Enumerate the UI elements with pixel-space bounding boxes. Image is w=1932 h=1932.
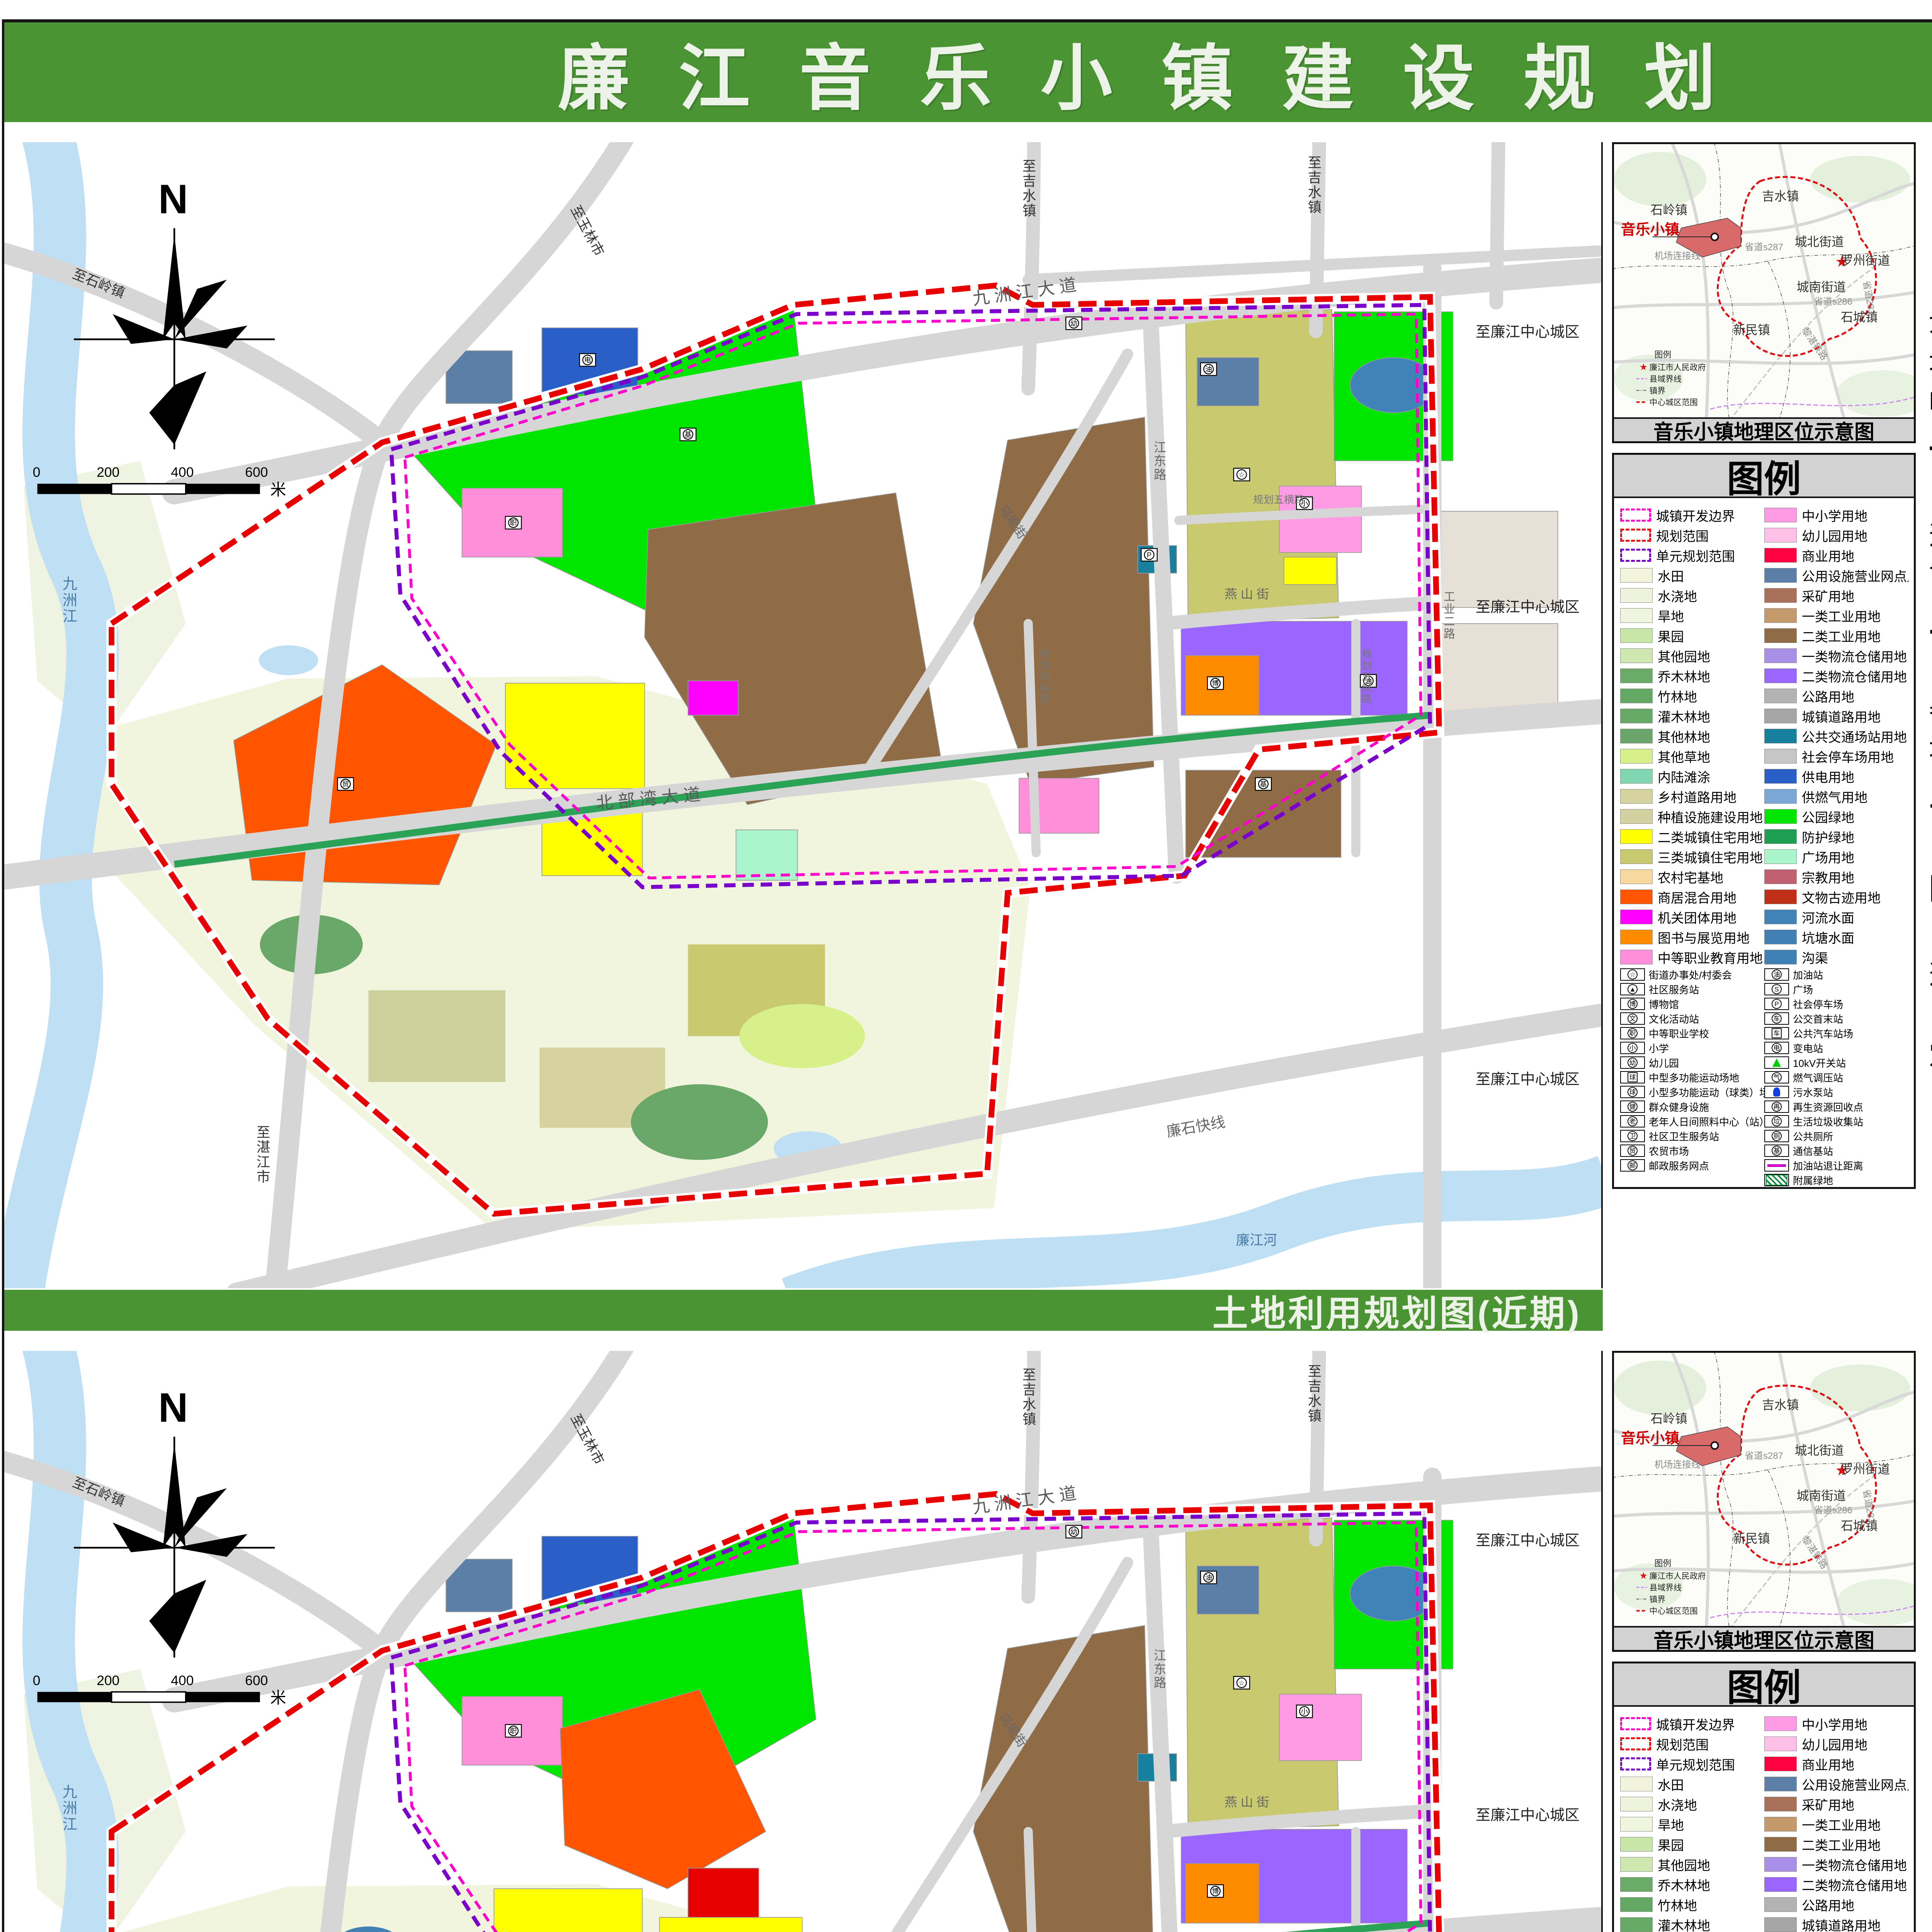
- legend-label: 公用设施营业网点用地: [1802, 566, 1908, 585]
- notice-paragraph: 远期(2036~2050)：按照音乐小镇的发展目标和城市总体规划确定的发展规模，…: [1929, 995, 1932, 1075]
- legend-swatch: [1620, 1917, 1653, 1932]
- legend-color-item: 三类城镇住宅用地: [1620, 847, 1764, 867]
- marker-glyph: 基: [1260, 780, 1267, 788]
- legend-swatch: [1764, 568, 1797, 583]
- legend-swatch: [1764, 668, 1797, 683]
- symbol-glyph: 基: [1772, 1146, 1782, 1156]
- legend-swatch: [1764, 1857, 1797, 1872]
- legend-swatch: [1764, 829, 1797, 844]
- 附属绿地-icon: [1764, 1174, 1789, 1186]
- legend-label: 规划范围: [1656, 526, 1709, 545]
- legend-label: 一类工业用地: [1802, 606, 1881, 625]
- legend-color-item: 一类物流仓储用地: [1764, 646, 1908, 666]
- legend-symbol-item: 球小型多功能运动（球类）场地: [1620, 1085, 1764, 1099]
- scale-tick: 400: [171, 1673, 194, 1688]
- road-label: 规划五横路: [1253, 494, 1304, 505]
- marker-glyph: ☆: [1238, 471, 1245, 479]
- legend-swatch: [1764, 1757, 1797, 1771]
- section-heading: 二、建设目标: [1929, 600, 1932, 646]
- legend-label: 公共汽车站场: [1793, 1026, 1853, 1041]
- legend-label: 幼儿园: [1649, 1056, 1679, 1070]
- 群众健身设施-icon: 健: [1620, 1100, 1645, 1113]
- scale-tick: 0: [33, 464, 41, 480]
- legend-label: 幼儿园用地: [1802, 1735, 1867, 1753]
- legend-label: 乡村道路用地: [1658, 787, 1736, 806]
- marker-glyph: P: [1147, 551, 1151, 559]
- symbol-glyph: 球: [1628, 1087, 1638, 1097]
- direction-label: 至廉江中心城区: [1476, 1532, 1580, 1549]
- legend-swatch: [1620, 648, 1653, 663]
- legend-color-item: 果园: [1620, 626, 1764, 646]
- legend-color-item: 竹林地: [1620, 1895, 1764, 1915]
- inset-svg: 音乐小镇 ★ 石岭镇 吉水镇 城北街道 罗州街道 城南街道 新民镇 石城镇 机场…: [1614, 1353, 1914, 1628]
- road-label: 燕 山 街: [1225, 1795, 1269, 1809]
- legend-color-item: 一类工业用地: [1764, 605, 1908, 626]
- 社会停车场-icon: P: [1764, 998, 1789, 1010]
- inset-caption: 音乐小镇地理区位示意图: [1614, 417, 1914, 441]
- legend-label: 二类物流仓储用地: [1802, 667, 1907, 685]
- marker-glyph: 博: [1212, 1887, 1219, 1895]
- legend-swatch: [1764, 930, 1797, 944]
- legend-swatch: [1764, 1817, 1797, 1832]
- legend-label: 其他草地: [1658, 747, 1710, 766]
- direction-label: 至吉水镇: [1308, 1364, 1321, 1423]
- scale-unit: 米: [270, 480, 286, 498]
- legend-color-item: 公路用地: [1764, 686, 1908, 706]
- symbol-glyph: 车: [1772, 1028, 1782, 1038]
- road-label: 机场连接线: [1654, 1459, 1700, 1470]
- road-label: 江东路: [1154, 440, 1166, 482]
- legend-label: 中型多功能运动场地: [1649, 1070, 1739, 1085]
- town-label: 城南街道: [1797, 1489, 1846, 1503]
- legend-swatch: [1620, 1737, 1651, 1750]
- direction-label: 至吉水镇: [1022, 158, 1036, 218]
- legend-label: 燃气调压站: [1793, 1070, 1843, 1085]
- legend-near: 图例 城镇开发边界规划范围单元规划范围水田水浇地旱地果园其他园地乔木林地竹林地灌…: [1612, 453, 1916, 1189]
- symbol-glyph: 博: [1628, 999, 1638, 1009]
- inset-legend-title: 图例: [1654, 1559, 1671, 1568]
- legend-boundary-item: 城镇开发边界: [1620, 1714, 1764, 1734]
- scale-tick: 200: [97, 464, 119, 480]
- inset-caption: 音乐小镇地理区位示意图: [1614, 1626, 1914, 1650]
- symbol-glyph: 厕: [1772, 1131, 1782, 1141]
- legend-color-item: 其他园地: [1620, 1854, 1764, 1874]
- direction-label: 至廉江中心城区: [1476, 324, 1580, 340]
- 变电站-icon: 电: [1764, 1042, 1789, 1054]
- legend-symbol-item: 附属绿地: [1764, 1173, 1908, 1187]
- poster-page: 廉 江 音 乐 小 镇 建 设 规 划 批前公示: [0, 0, 1932, 1932]
- legend-color-item: 内陆滩涂: [1620, 766, 1764, 786]
- legend-label: 城镇道路用地: [1802, 1915, 1881, 1932]
- symbol-glyph: 小: [1628, 1043, 1638, 1053]
- river-label: 廉江河: [1236, 1232, 1277, 1248]
- legend-swatch: [1764, 709, 1797, 723]
- legend-symbol-item: 基通信基站: [1764, 1143, 1908, 1158]
- legend-color-item: 供电用地: [1764, 766, 1908, 786]
- legend-symbol-item: 厕公共厕所: [1764, 1129, 1908, 1143]
- town-label: 城北街道: [1795, 235, 1844, 249]
- legend-symbol-item: 贸农贸市场: [1620, 1143, 1764, 1158]
- symbol-glyph: 职: [1628, 1028, 1638, 1038]
- symbol-glyph: S: [1772, 984, 1782, 994]
- legend-swatch: [1620, 789, 1653, 804]
- legend-swatch: [1620, 709, 1653, 723]
- legend-swatch: [1620, 1797, 1653, 1811]
- legend-label: 供燃气用地: [1802, 787, 1867, 806]
- legend-swatch: [1620, 1897, 1653, 1912]
- legend-color-item: 采矿用地: [1764, 585, 1908, 605]
- section-heading: 一、规划范围: [1929, 427, 1932, 473]
- legend-swatch: [1620, 1757, 1651, 1770]
- legend-swatch: [1764, 508, 1797, 522]
- legend-color-item: 其他草地: [1620, 746, 1764, 766]
- legend-color-item: 灌木林地: [1620, 706, 1764, 726]
- 加油站退让距离-icon: [1764, 1159, 1789, 1172]
- legend-body: 城镇开发边界规划范围单元规划范围水田水浇地旱地果园其他园地乔木林地竹林地灌木林地…: [1614, 498, 1914, 1190]
- legend-swatch: [1620, 529, 1651, 542]
- legend-label: 小学: [1649, 1041, 1669, 1055]
- road-label: 省道s287: [1745, 1451, 1783, 1461]
- legend-color-item: 二类工业用地: [1764, 1834, 1908, 1854]
- legend-symbol-item: 10kV开关站: [1764, 1055, 1908, 1070]
- legend-swatch: [1620, 509, 1651, 522]
- section-heading: 三、功能定位: [1929, 773, 1932, 820]
- legend-swatch: [1620, 869, 1653, 884]
- legend-label: 幼儿园用地: [1802, 526, 1867, 545]
- legend-label: 公用设施营业网点用地: [1802, 1775, 1908, 1794]
- legend-color-item: 旱地: [1620, 1814, 1764, 1834]
- marker-glyph: 职: [510, 519, 517, 527]
- 生活垃圾收集站-icon: 垃: [1764, 1115, 1789, 1128]
- legend-swatch: [1764, 1777, 1797, 1791]
- legend-label: 中等职业学校: [1649, 1026, 1709, 1041]
- legend-label: 10kV开关站: [1793, 1056, 1846, 1070]
- legend-swatch: [1620, 769, 1653, 784]
- 广场-icon: S: [1764, 983, 1789, 995]
- legend-label: 老年人日间照料中心（站）: [1649, 1114, 1764, 1129]
- legend-color-item: 广场用地: [1764, 847, 1908, 867]
- legend-label: 防护绿地: [1802, 827, 1854, 846]
- legend-label: 中小学用地: [1802, 506, 1867, 525]
- town-label: 罗州街道: [1841, 253, 1890, 267]
- symbol-glyph: [1766, 1175, 1787, 1185]
- legend-label: 机关团体用地: [1658, 908, 1736, 927]
- legend-swatch: [1620, 549, 1651, 562]
- legend-label: 文化活动站: [1649, 1012, 1699, 1026]
- legend-swatch: [1764, 950, 1797, 964]
- symbol-glyph: 贸: [1628, 1146, 1638, 1156]
- legend-label: 旱地: [1658, 606, 1684, 625]
- inset-legend-title: 图例: [1654, 350, 1671, 360]
- legend-label: 城镇开发边界: [1656, 506, 1735, 525]
- legend-symbol-item: 加油站退让距离: [1764, 1158, 1908, 1173]
- legend-color-item: 二类工业用地: [1764, 626, 1908, 646]
- legend-label: 污水泵站: [1793, 1085, 1833, 1099]
- legend-color-item: 种植设施建设用地: [1620, 806, 1764, 827]
- legend-swatch: [1764, 528, 1797, 543]
- legend-swatch: [1764, 769, 1797, 784]
- legend-label: 果园: [1658, 626, 1684, 645]
- inset-legend-label: 镇界: [1650, 386, 1666, 395]
- legend-label: 果园: [1658, 1835, 1684, 1854]
- legend-label: 公共交通场站用地: [1802, 727, 1907, 746]
- direction-label: 至湛江市: [257, 1124, 270, 1184]
- location-inset-map: 音乐小镇 ★ 石岭镇 吉水镇 城北街道 罗州街道 城南街道 新民镇 石城镇 机场…: [1614, 144, 1914, 419]
- section-heading: 四、用地布局: [1929, 866, 1932, 912]
- symbol-glyph: ☆: [1628, 969, 1638, 980]
- direction-label: 至廉江中心城区: [1476, 1807, 1580, 1823]
- legend-label: 加油站: [1793, 968, 1823, 982]
- 污水泵站-icon: [1764, 1086, 1789, 1098]
- legend-symbol-item: ☆街道办事处/村委会: [1620, 967, 1764, 982]
- symbol-glyph: 球: [1628, 1072, 1638, 1082]
- legend-label: 农村宅基地: [1658, 867, 1723, 886]
- legend-color-item: 商业用地: [1764, 545, 1908, 565]
- notice-paragraph: 根据《中华人民共和国城乡规划法》、《广东省城乡规划条例》、《城市规划编制办法》等…: [1929, 222, 1932, 423]
- legend-swatch: [1764, 1797, 1797, 1811]
- 街道办事处/村委会-icon: ☆: [1620, 968, 1645, 981]
- legend-label: 社会停车场用地: [1802, 747, 1894, 766]
- location-inset-far: 音乐小镇 ★ 石岭镇 吉水镇 城北街道 罗州街道 城南街道 新民镇 石城镇 机场…: [1612, 1351, 1916, 1652]
- legend-color-item: 中小学用地: [1764, 505, 1908, 525]
- symbol-glyph: 气: [1772, 1072, 1782, 1082]
- town-label: 石岭镇: [1651, 203, 1687, 217]
- legend-swatch: [1764, 648, 1797, 663]
- 公交首末站-icon: 车: [1764, 1012, 1789, 1025]
- legend-swatch: [1620, 829, 1653, 844]
- inset-svg: 音乐小镇 ★ 石岭镇 吉水镇 城北街道 罗州街道 城南街道 新民镇 石城镇 机场…: [1614, 144, 1914, 419]
- legend-swatch: [1620, 1877, 1653, 1892]
- land-use-map-near-term: 职 电 基 幼 油 ☆ 小 P 博 基 油 贸 九 洲 江 大 道 北 部 湾 …: [3, 142, 1603, 1288]
- legend-color-item: 供燃气用地: [1764, 786, 1908, 806]
- legend-color-item: 中等职业教育用地: [1620, 947, 1764, 967]
- legend-swatch: [1764, 628, 1797, 643]
- legend-color-item: 城镇道路用地: [1764, 1915, 1908, 1932]
- symbol-glyph: 车: [1772, 1014, 1782, 1024]
- legend-swatch: [1620, 668, 1653, 683]
- legend-label: 一类工业用地: [1802, 1815, 1881, 1834]
- legend-color-item: 乡村道路用地: [1620, 786, 1764, 806]
- legend-swatch: [1764, 548, 1797, 563]
- 老年人日间照料中心（站）-icon: 老: [1620, 1115, 1645, 1128]
- legend-color-item: 农村宅基地: [1620, 867, 1764, 887]
- legend-label: 邮政服务网点: [1649, 1158, 1709, 1173]
- legend-swatch: [1764, 849, 1797, 864]
- legend-label: 单元规划范围: [1656, 1755, 1735, 1774]
- legend-label: 商居混合用地: [1658, 888, 1736, 906]
- symbol-glyph: [1772, 1058, 1781, 1067]
- legend-color-item: 二类物流仓储用地: [1764, 666, 1908, 686]
- legend-label: 群众健身设施: [1649, 1100, 1709, 1114]
- legend-swatch: [1764, 749, 1797, 764]
- legend-label: 其他园地: [1658, 646, 1710, 665]
- legend-swatch: [1764, 889, 1797, 904]
- legend-label: 坑塘水面: [1802, 928, 1854, 947]
- road-label: 省道s287: [1745, 242, 1783, 252]
- legend-symbol-item: 健群众健身设施: [1620, 1099, 1764, 1114]
- legend-color-item: 河流水面: [1764, 907, 1908, 927]
- town-label: 城北街道: [1795, 1444, 1844, 1458]
- notice-heading: 公示说明: [1929, 144, 1932, 212]
- legend-label: 农贸市场: [1649, 1144, 1689, 1158]
- town-label: 石岭镇: [1651, 1412, 1687, 1425]
- marker-glyph: ☆: [1238, 1679, 1245, 1687]
- symbol-glyph: P: [1772, 999, 1782, 1009]
- direction-label: 至廉江中心城区: [1476, 1071, 1580, 1088]
- map1-svg: 职 电 基 幼 油 ☆ 小 P 博 基 油 贸 九 洲 江 大 道 北 部 湾 …: [3, 142, 1601, 1288]
- legend-symbol-item: 车公共汽车站场: [1764, 1026, 1908, 1041]
- marker-glyph: 基: [684, 430, 691, 439]
- legend-label: 社会停车场: [1793, 997, 1843, 1011]
- legend-color-item: 公用设施营业网点用地: [1764, 565, 1908, 585]
- road-label: 工业二路: [1444, 590, 1455, 640]
- legend-label: 公共厕所: [1793, 1129, 1833, 1143]
- legend-color-item: 水田: [1620, 1774, 1764, 1794]
- legend-swatch: [1764, 1736, 1797, 1751]
- legend-boundary-item: 规划范围: [1620, 525, 1764, 545]
- legend-swatch: [1764, 789, 1797, 804]
- legend-title: 图例: [1614, 1663, 1914, 1707]
- legend-symbol-item: 博博物馆: [1620, 997, 1764, 1011]
- legend-label: 内陆滩涂: [1658, 767, 1710, 786]
- legend-label: 商业用地: [1802, 546, 1854, 565]
- legend-color-item: 机关团体用地: [1620, 907, 1764, 927]
- river-label: 九洲江: [63, 576, 77, 625]
- legend-title: 图例: [1614, 455, 1914, 498]
- legend-swatch: [1620, 809, 1653, 824]
- legend-label: 单元规划范围: [1656, 546, 1735, 565]
- legend-boundary-item: 规划范围: [1620, 1734, 1764, 1754]
- 农贸市场-icon: 贸: [1620, 1145, 1645, 1157]
- symbol-glyph: 幼: [1628, 1058, 1638, 1068]
- town-label: 罗州街道: [1841, 1462, 1890, 1476]
- symbol-glyph: 再: [1772, 1102, 1782, 1112]
- scale-tick: 400: [171, 464, 194, 480]
- legend-symbol-item: 球中型多功能运动场地: [1620, 1070, 1764, 1085]
- 小学-icon: 小: [1620, 1042, 1645, 1054]
- legend-swatch: [1764, 1897, 1797, 1912]
- legend-label: 旱地: [1658, 1815, 1684, 1834]
- legend-symbol-item: S广场: [1764, 982, 1908, 997]
- legend-color-item: 果园: [1620, 1834, 1764, 1854]
- legend-symbol-item: 文文化活动站: [1620, 1011, 1764, 1026]
- legend-boundary-item: 城镇开发边界: [1620, 505, 1764, 525]
- 文化活动站-icon: 文: [1620, 1012, 1645, 1025]
- legend-color-item: 社会停车场用地: [1764, 746, 1908, 766]
- location-inset-near: 音乐小镇 ★ 石岭镇 吉水镇 城北街道 罗州街道 城南街道 新民镇 石城镇 机场…: [1612, 142, 1916, 443]
- legend-color-item: 采矿用地: [1764, 1794, 1908, 1814]
- legend-color-item: 水浇地: [1620, 1794, 1764, 1814]
- marker-glyph: 小: [1301, 1707, 1308, 1715]
- legend-swatch: [1620, 729, 1653, 743]
- legend-color-item: 一类工业用地: [1764, 1814, 1908, 1834]
- notice-paragraph: 打造集国际品牌电声乐器研发制造、乐器生产技师培训、国际乐器展贸基地、电声音乐创作…: [1929, 649, 1932, 769]
- legend-label: 中等职业教育用地: [1658, 948, 1763, 967]
- legend-boundary-item: 单元规划范围: [1620, 1754, 1764, 1774]
- map1-banner: 土地利用规划图(近期): [3, 1290, 1603, 1331]
- legend-label: 三类城镇住宅用地: [1658, 847, 1763, 866]
- legend-swatch: [1764, 689, 1797, 703]
- legend-color-item: 二类物流仓储用地: [1764, 1874, 1908, 1895]
- legend-swatch: [1620, 1837, 1653, 1852]
- legend-swatch: [1620, 1717, 1651, 1730]
- marker-glyph: 油: [1205, 1573, 1212, 1582]
- legend-label: 灌木林地: [1658, 1915, 1710, 1932]
- legend-swatch: [1620, 1817, 1653, 1832]
- legend-color-item: 文物古迹用地: [1764, 887, 1908, 907]
- legend-swatch: [1764, 869, 1797, 884]
- legend-label: 文物古迹用地: [1802, 888, 1881, 906]
- marker-glyph: 电: [584, 356, 591, 364]
- legend-label: 水浇地: [1658, 1795, 1697, 1814]
- legend-symbol-item: 油加油站: [1764, 967, 1908, 982]
- scale-unit: 米: [270, 1689, 286, 1707]
- legend-color-item: 其他林地: [1620, 726, 1764, 746]
- legend-label: 广场用地: [1802, 847, 1854, 866]
- marker-glyph: 博: [1212, 679, 1219, 687]
- legend-label: 二类工业用地: [1802, 626, 1881, 645]
- legend-swatch: [1620, 1777, 1653, 1791]
- road-label: 机场连接线: [1654, 251, 1700, 261]
- scale-tick: 600: [245, 464, 268, 480]
- inset-legend-label: 县域界线: [1650, 375, 1682, 384]
- location-inset-map: 音乐小镇 ★ 石岭镇 吉水镇 城北街道 罗州街道 城南街道 新民镇 石城镇 机场…: [1614, 1353, 1914, 1628]
- legend-swatch: [1764, 1877, 1797, 1892]
- legend-label: 加油站退让距离: [1793, 1158, 1863, 1173]
- legend-swatch: [1620, 749, 1653, 764]
- legend-swatch: [1620, 608, 1653, 623]
- symbol-glyph: [1773, 1087, 1780, 1097]
- legend-label: 乔木林地: [1658, 667, 1710, 685]
- symbol-glyph: 文: [1628, 1014, 1638, 1024]
- legend-label: 灌木林地: [1658, 707, 1710, 726]
- legend-label: 供电用地: [1802, 767, 1854, 786]
- 公共厕所-icon: 厕: [1764, 1130, 1789, 1142]
- legend-swatch: [1764, 1837, 1797, 1852]
- star-icon: ★: [1639, 1571, 1648, 1581]
- symbol-glyph: ▲: [1628, 984, 1638, 994]
- legend-label: 二类工业用地: [1802, 1835, 1881, 1854]
- legend-swatch: [1620, 910, 1653, 924]
- legend-label: 沟渠: [1802, 948, 1828, 967]
- legend-symbol-item: 电变电站: [1764, 1041, 1908, 1055]
- legend-color-item: 防护绿地: [1764, 827, 1908, 847]
- legend-swatch: [1620, 950, 1653, 964]
- legend-swatch: [1620, 930, 1653, 944]
- 中型多功能运动场地-icon: 球: [1620, 1071, 1645, 1083]
- legend-label: 一类物流仓储用地: [1802, 1855, 1907, 1874]
- legend-color-item: 其他园地: [1620, 646, 1764, 666]
- town-label: 城南街道: [1797, 280, 1846, 294]
- scale-tick: 200: [97, 1673, 119, 1688]
- inset-legend-label: 中心城区范围: [1650, 398, 1698, 407]
- legend-label: 采矿用地: [1802, 1795, 1854, 1814]
- north-letter: N: [158, 1385, 188, 1431]
- legend-label: 公交首末站: [1793, 1012, 1843, 1026]
- notice-paragraph: 电声乐器制造、智创商务文旅、特色生态游憩、健康宜居社区。: [1929, 822, 1932, 862]
- marker-glyph: 油: [1205, 365, 1212, 373]
- scale-tick: 600: [245, 1673, 268, 1688]
- legend-label: 公园绿地: [1802, 807, 1854, 826]
- symbol-glyph: 垃: [1772, 1116, 1782, 1126]
- legend-far: 图例 城镇开发边界规划范围单元规划范围水田水浇地旱地果园其他园地乔木林地竹林地灌…: [1612, 1662, 1916, 1932]
- legend-label: 公路用地: [1802, 687, 1854, 706]
- notice-paragraph: 近期(2022~2035)：按照上级已批复的“三区三线”用地规模，优选设置规划区…: [1929, 915, 1932, 995]
- legend-label: 社区卫生服务站: [1649, 1129, 1719, 1143]
- symbol-glyph: 油: [1772, 969, 1782, 980]
- legend-color-item: 坑塘水面: [1764, 927, 1908, 947]
- legend-label: 二类城镇住宅用地: [1658, 827, 1763, 846]
